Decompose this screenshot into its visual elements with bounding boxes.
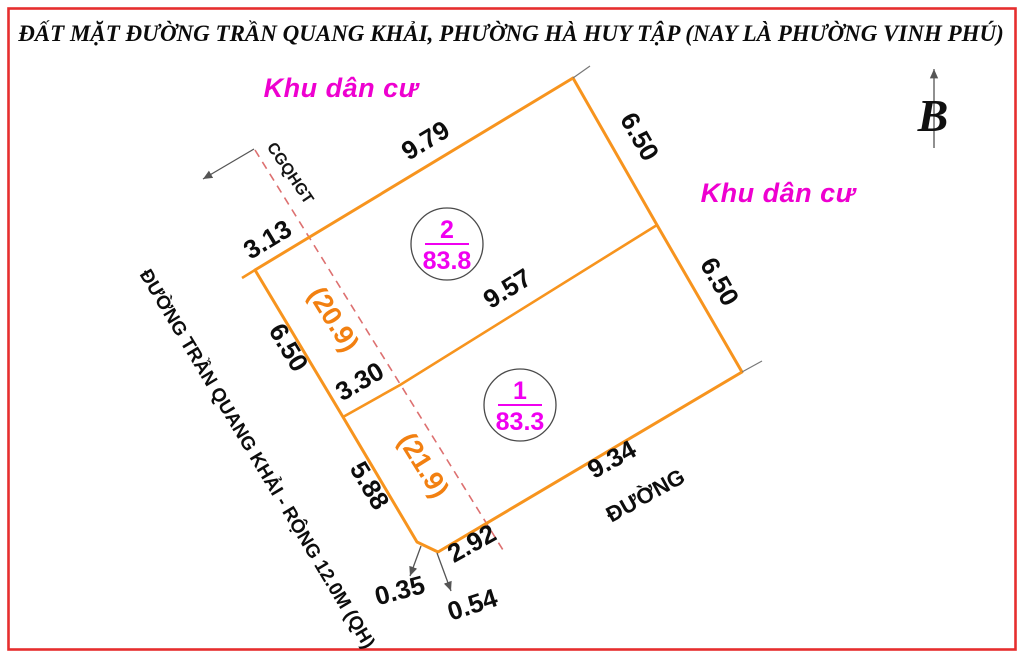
plan-canvas: ĐẤT MẶT ĐƯỜNG TRẦN QUANG KHẢI, PHƯỜNG HÀ…: [0, 0, 1024, 658]
north-label: B: [917, 90, 949, 141]
land-plot-diagram: ĐẤT MẶT ĐƯỜNG TRẦN QUANG KHẢI, PHƯỜNG HÀ…: [0, 0, 1024, 658]
corner-overshoot-tick: [242, 270, 255, 278]
dim-right-edge-upper: 6.50: [614, 107, 665, 166]
zone-label-right: Khu dân cư: [701, 178, 858, 208]
dim-chamfer-left: 0.35: [371, 569, 428, 611]
chamfer-arrow-right-icon: [437, 553, 451, 591]
corner-tick-right: [742, 361, 762, 372]
plot-1-area: 83.3: [496, 408, 545, 436]
plot-1-number: 1: [513, 377, 527, 405]
plot-2-area: 83.8: [423, 247, 472, 275]
dim-planning-strip-lower: (21.9): [392, 427, 455, 503]
dim-bottom-edge-end: 2.92: [442, 518, 501, 569]
zone-label-left: Khu dân cư: [264, 73, 421, 103]
planning-direction-arrow-icon: [203, 149, 254, 179]
planning-boundary-label: CGQHGT: [263, 140, 316, 208]
page-border: [9, 9, 1016, 650]
dim-left-edge-upper: 6.50: [263, 318, 315, 377]
plot-badge-1: 1 83.3: [484, 369, 556, 441]
plot-badge-2: 2 83.8: [411, 208, 483, 280]
dim-top-left-edge: 9.79: [396, 114, 455, 166]
plot-2-number: 2: [440, 216, 454, 244]
dim-divider-left: 3.30: [330, 356, 389, 407]
dim-chamfer-right: 0.54: [444, 582, 502, 626]
dim-left-edge-lower: 5.88: [344, 456, 396, 515]
dim-planning-strip-upper: (20.9): [302, 281, 365, 357]
page-title: ĐẤT MẶT ĐƯỜNG TRẦN QUANG KHẢI, PHƯỜNG HÀ…: [17, 20, 1004, 46]
dim-bottom-edge: 9.34: [582, 433, 641, 484]
dim-left-offcut: 3.13: [238, 213, 297, 265]
corner-tick-top: [573, 66, 590, 78]
